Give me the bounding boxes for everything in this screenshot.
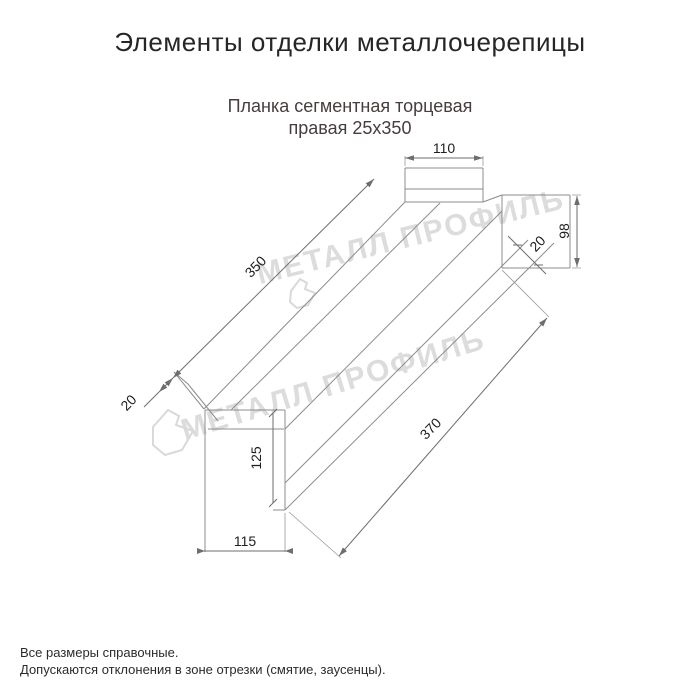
footer-note-2: Допускаются отклонения в зоне отрезки (с… xyxy=(20,661,386,678)
watermark-upper: МЕТАЛЛ ПРОФИЛЬ xyxy=(253,183,568,292)
svg-text:МЕТАЛЛ ПРОФИЛЬ: МЕТАЛЛ ПРОФИЛЬ xyxy=(177,323,489,447)
dim-label-98: 98 xyxy=(556,223,572,239)
dim-label-110: 110 xyxy=(433,140,456,156)
dim-20-left: 20 xyxy=(117,378,173,414)
dim-350: 350 xyxy=(173,179,374,378)
technical-drawing: МЕТАЛЛ ПРОФИЛЬ МЕТАЛЛ ПРОФИЛЬ 110 98 xyxy=(0,0,700,700)
dim-label-125: 125 xyxy=(248,446,264,470)
dim-370: 370 xyxy=(289,270,549,558)
footer-note-1: Все размеры справочные. xyxy=(20,644,386,661)
brand-logo-icon-upper xyxy=(290,279,315,308)
svg-text:МЕТАЛЛ ПРОФИЛЬ: МЕТАЛЛ ПРОФИЛЬ xyxy=(253,183,568,292)
dim-label-370: 370 xyxy=(417,414,445,442)
footer-notes: Все размеры справочные. Допускаются откл… xyxy=(20,644,386,678)
dim-115: 115 xyxy=(197,533,293,554)
dim-label-20-left: 20 xyxy=(117,391,139,413)
dim-label-115: 115 xyxy=(234,533,257,549)
dim-110: 110 xyxy=(405,140,483,166)
watermark-lower: МЕТАЛЛ ПРОФИЛЬ xyxy=(177,323,489,447)
